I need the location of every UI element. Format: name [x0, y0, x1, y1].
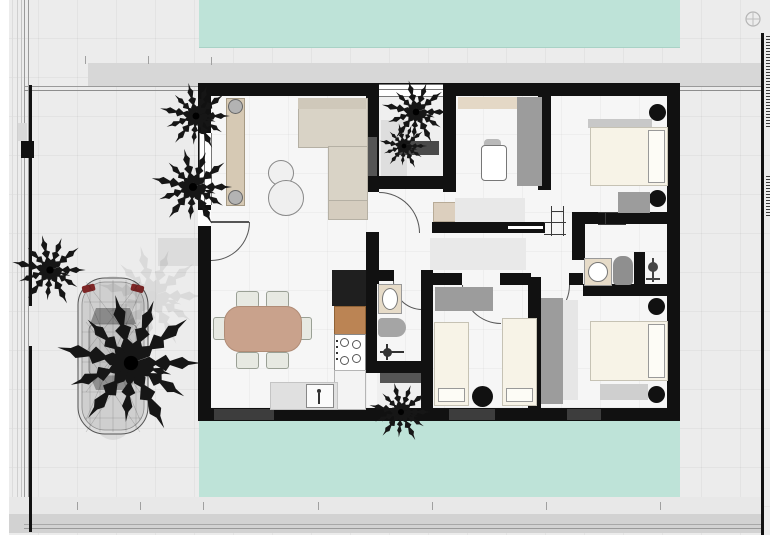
- wall-right: [667, 96, 680, 408]
- property-line-left-2: [29, 346, 32, 532]
- dining-table: [224, 306, 302, 352]
- tick-b7: [660, 502, 661, 510]
- tick-b6: [546, 502, 547, 510]
- palm-left-edge-icon: [10, 230, 90, 310]
- tick-t2: [148, 56, 149, 64]
- ensuite-toilet-bar: [646, 278, 660, 280]
- left-margin: [0, 0, 9, 535]
- palm-driveway-icon: [91, 323, 171, 403]
- twin-bed-right-pillow: [506, 388, 533, 402]
- pool-top: [199, 0, 680, 48]
- survey-marks-right-1: [766, 36, 770, 128]
- frame-line-h3: [24, 524, 762, 525]
- north-glyph-icon: [742, 8, 764, 30]
- island-faucet-spout: [318, 393, 320, 404]
- frame-line-h4: [24, 528, 762, 529]
- wall-bath-top: [377, 270, 394, 281]
- kitchen-wood-counter: [334, 306, 366, 336]
- palm-pool-niche-icon: [361, 372, 441, 452]
- bed1-pot-bottom: [649, 190, 666, 207]
- stove-knobs: [336, 340, 338, 364]
- wall-ensuite-left: [572, 212, 585, 260]
- burner-2: [352, 340, 361, 349]
- dim-marker-3: [598, 212, 626, 225]
- hall-shadow: [430, 238, 526, 270]
- bed2-pot-top: [648, 298, 665, 315]
- burner-1: [340, 338, 349, 347]
- threshold-1: [214, 409, 274, 420]
- island-sink: [306, 384, 334, 408]
- bed2-wardrobe: [541, 298, 563, 404]
- kitchen-stove: [334, 334, 366, 372]
- burner-3: [340, 356, 349, 365]
- palm-house-left-mid-icon: [153, 147, 233, 227]
- office-shelf: [458, 97, 518, 109]
- twin-nightstand: [472, 386, 493, 407]
- wall-hall-twin-b: [500, 273, 531, 285]
- bed1-headboard: [648, 130, 665, 183]
- gate-post-pad: [18, 123, 27, 141]
- survey-marks-right-2: [766, 176, 770, 218]
- shower-pipe: [380, 351, 404, 353]
- burner-4: [352, 354, 361, 363]
- shower-pipe-2: [386, 344, 388, 360]
- bed1-wardrobe: [618, 192, 650, 213]
- threshold-3: [567, 409, 601, 420]
- coffee-table-large: [268, 180, 304, 216]
- bed2-pot-bottom: [648, 386, 665, 403]
- office-desk: [481, 145, 507, 181]
- office-wall-slot: [508, 226, 543, 229]
- dining-chair-3: [236, 352, 259, 369]
- tick-b3: [203, 502, 204, 510]
- wall-hall-twin-a: [433, 273, 462, 285]
- property-line-right: [761, 33, 764, 535]
- office-wardrobe: [517, 97, 542, 186]
- kitchen-tall-cabinet: [332, 270, 366, 306]
- gate-post: [21, 141, 34, 158]
- band-bottom-1: [9, 497, 762, 514]
- palm-courtyard-small-icon: [364, 106, 444, 186]
- ensuite-sink-basin: [588, 262, 608, 282]
- wall-bath-left: [366, 284, 377, 373]
- ensuite-shower: [613, 256, 633, 285]
- bed2-rug: [600, 384, 648, 400]
- floor-plan: [0, 0, 770, 535]
- tick-t3: [211, 57, 212, 65]
- palm-house-left-top-icon: [156, 76, 236, 156]
- twin-bed-left-pillow: [438, 388, 465, 402]
- office-rug: [455, 198, 525, 222]
- bed2-headboard: [648, 324, 665, 378]
- tick-b5: [432, 502, 433, 510]
- tick-t1: [85, 56, 86, 64]
- tick-b2: [140, 502, 141, 510]
- sofa-ottoman: [328, 200, 368, 220]
- bath-toilet: [378, 318, 406, 337]
- bath-sink-basin: [382, 288, 398, 310]
- tick-b4: [318, 502, 319, 510]
- dining-chair-4: [266, 352, 289, 369]
- wall-left-lower: [198, 226, 211, 408]
- dim-marker-2: [551, 206, 564, 236]
- threshold-2: [449, 409, 495, 420]
- wall-hall-twin-c: [569, 273, 583, 285]
- bed1-pot-top: [649, 104, 666, 121]
- tick-b1: [77, 502, 78, 510]
- twin-wardrobe: [435, 287, 493, 311]
- wall-ensuite-inner: [634, 252, 645, 286]
- sofa-back: [298, 98, 366, 109]
